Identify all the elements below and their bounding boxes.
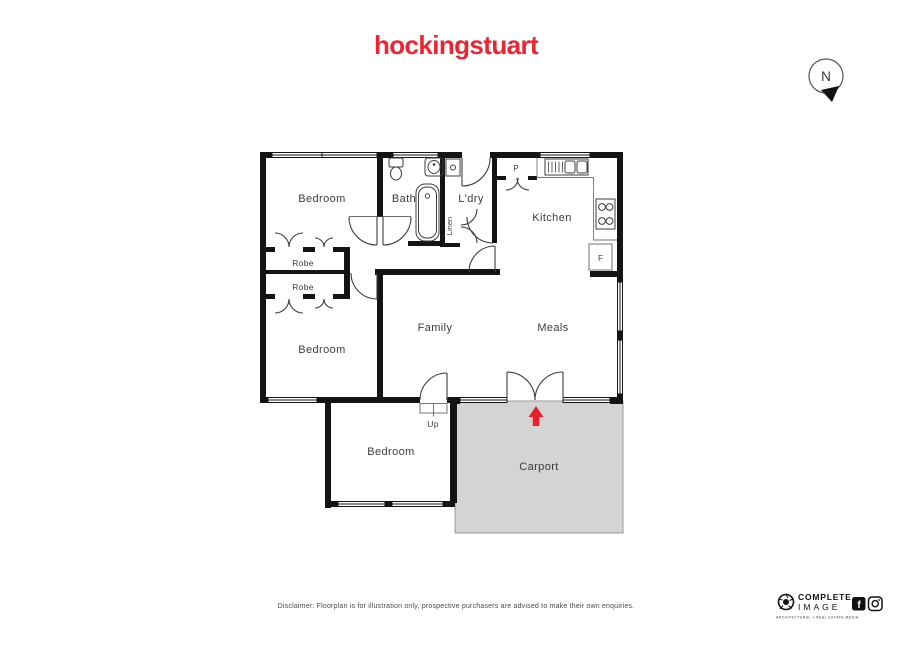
door-french-left bbox=[507, 372, 535, 400]
room-label-bedroom-1: Bedroom bbox=[298, 193, 345, 205]
doors-robe1 bbox=[275, 233, 333, 247]
room-label-bedroom-2: Bedroom bbox=[298, 344, 345, 356]
credit-line2: IMAGE bbox=[798, 602, 840, 612]
aperture-icon bbox=[779, 595, 794, 610]
stove-icon bbox=[596, 199, 615, 229]
fixtures bbox=[389, 158, 617, 417]
door-french-right bbox=[535, 372, 563, 400]
bathtub-icon bbox=[416, 184, 439, 241]
label-up: Up bbox=[427, 419, 438, 429]
compass-pointer-icon bbox=[821, 86, 839, 102]
label-pantry: P bbox=[513, 164, 518, 173]
room-label-robe-2: Robe bbox=[292, 282, 314, 292]
facebook-icon: f bbox=[852, 597, 866, 611]
room-label-meals: Meals bbox=[537, 322, 568, 334]
door-bedroom1 bbox=[349, 217, 377, 245]
door-back-entry bbox=[462, 158, 490, 186]
kitchen-sink-icon bbox=[545, 159, 588, 175]
room-label-robe-1: Robe bbox=[292, 258, 314, 268]
credit-tagline: ARCHITECTURAL + REAL ESTATE MEDIA bbox=[776, 616, 859, 620]
compass: N bbox=[809, 59, 843, 102]
room-label-bath: Bath bbox=[392, 193, 416, 205]
label-fridge: F bbox=[598, 254, 603, 263]
instagram-icon bbox=[869, 597, 883, 611]
compass-north-label: N bbox=[821, 69, 831, 84]
laundry-trough-icon bbox=[446, 159, 460, 176]
room-label-kitchen: Kitchen bbox=[532, 212, 572, 224]
doors-robe2 bbox=[275, 299, 333, 313]
door-family bbox=[469, 246, 495, 272]
door-bedroom2 bbox=[351, 273, 377, 299]
room-label-family: Family bbox=[418, 322, 453, 334]
door-pantry-double bbox=[506, 178, 529, 190]
door-entry-up bbox=[420, 373, 447, 400]
credit-logo: COMPLETE IMAGE ARCHITECTURAL + REAL ESTA… bbox=[772, 590, 912, 626]
door-bath bbox=[383, 217, 411, 245]
room-label-carport: Carport bbox=[519, 461, 558, 473]
floorplan: N bbox=[0, 0, 912, 645]
entry-steps bbox=[420, 404, 447, 417]
room-label-bedroom-3: Bedroom bbox=[367, 446, 414, 458]
credit-line1: COMPLETE bbox=[798, 592, 852, 602]
room-label-laundry: L'dry bbox=[458, 193, 484, 205]
toilet-icon bbox=[389, 158, 403, 180]
label-linen: Linen bbox=[445, 217, 454, 235]
